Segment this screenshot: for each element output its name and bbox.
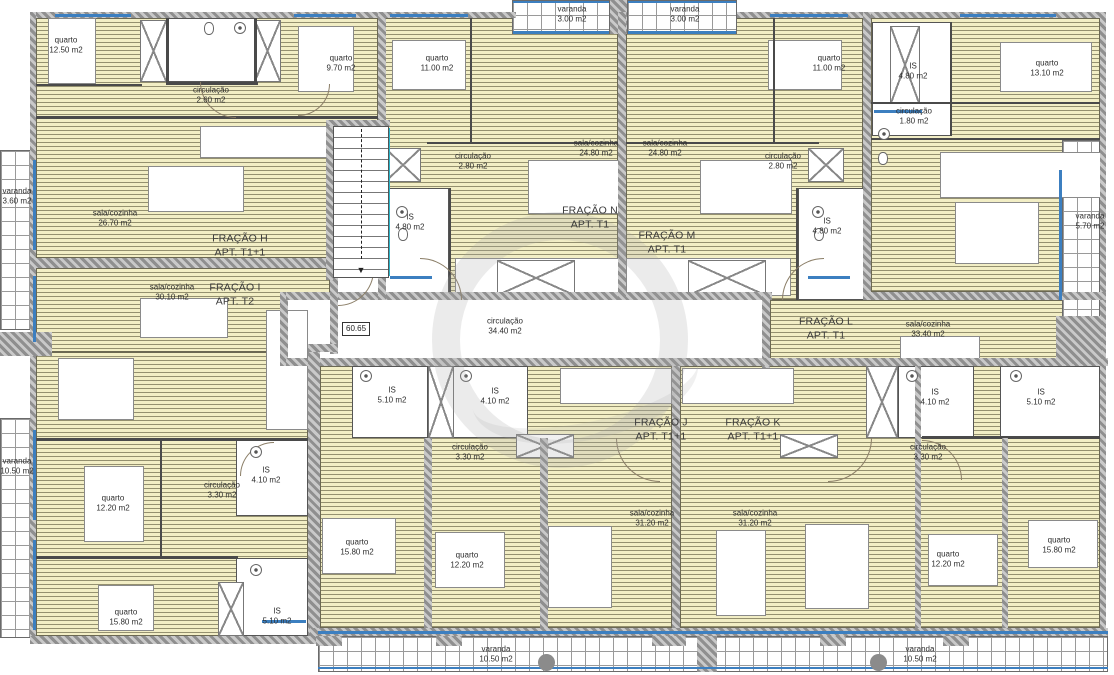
- label-line1: circulação: [910, 443, 946, 452]
- window-glass: [513, 1, 609, 3]
- fraction-label: FRAÇÃO NAPT. T1: [562, 204, 618, 231]
- partition-wall: [773, 18, 775, 142]
- room-label: circulação34.40 m2: [487, 317, 523, 338]
- room-label: IS4.80 m2: [396, 213, 425, 234]
- label-line1: quarto: [1048, 536, 1071, 545]
- wardrobe-x: [497, 260, 575, 296]
- wall-segment: [326, 120, 333, 280]
- window-glass: [1059, 170, 1062, 300]
- staircase: ▼: [333, 126, 389, 278]
- label-line1: quarto: [330, 54, 353, 63]
- room-label: circulação3.30 m2: [204, 481, 240, 502]
- label-line2: 4.80 m2: [813, 227, 842, 236]
- sink-icon: [234, 22, 246, 34]
- label-line2: 3.30 m2: [456, 453, 485, 462]
- label-line2: 10.50 m2: [479, 655, 512, 664]
- label-line2: 12.20 m2: [450, 561, 483, 570]
- wardrobe-x: [866, 366, 898, 438]
- window-glass: [33, 276, 36, 342]
- label-line1: sala/cozinha: [733, 509, 777, 518]
- sink-icon: [878, 128, 890, 140]
- sink-icon: [1010, 370, 1022, 382]
- wall-segment: [308, 352, 320, 644]
- label-line1: IS: [1037, 388, 1045, 397]
- window-glass: [770, 14, 848, 17]
- label-line2: 5.10 m2: [378, 396, 407, 405]
- room-label: IS4.10 m2: [921, 388, 950, 409]
- label-line2: APT. T1+1: [636, 430, 687, 442]
- label-line1: circulação: [452, 443, 488, 452]
- wall-segment: [436, 636, 462, 646]
- fraction-label: FRAÇÃO MAPT. T1: [638, 229, 695, 256]
- label-line1: varanda: [482, 645, 511, 654]
- room-label: sala/cozinha24.80 m2: [574, 139, 618, 160]
- label-line1: sala/cozinha: [643, 139, 687, 148]
- label-line1: varanda: [3, 187, 32, 196]
- room-label: IS5.10 m2: [1027, 388, 1056, 409]
- wall-segment: [762, 292, 770, 368]
- label-line2: APT. T1+1: [215, 246, 266, 258]
- label-line1: quarto: [1036, 59, 1059, 68]
- wall-segment: [30, 636, 318, 644]
- label-line1: quarto: [426, 54, 449, 63]
- label-line2: 33.40 m2: [911, 330, 944, 339]
- wall-segment: [1002, 438, 1008, 628]
- wardrobe-x: [254, 20, 281, 82]
- room-label: quarto12.20 m2: [96, 494, 129, 515]
- furniture: [955, 202, 1039, 264]
- wall-segment: [672, 366, 680, 628]
- stair-direction-line: [361, 129, 362, 259]
- label-line1: varanda: [1076, 212, 1105, 221]
- label-line2: 3.00 m2: [671, 15, 700, 24]
- label-line2: 11.00 m2: [421, 64, 454, 73]
- room-label: varanda3.60 m2: [3, 187, 32, 208]
- furniture: [940, 152, 1102, 198]
- label-line2: 12.50 m2: [49, 46, 82, 55]
- label-line2: 15.80 m2: [109, 618, 142, 627]
- sink-icon: [906, 370, 918, 382]
- room-label: quarto15.80 m2: [340, 538, 373, 559]
- wall-segment: [316, 636, 342, 646]
- room-label: quarto15.80 m2: [109, 608, 142, 629]
- room-label: quarto13.10 m2: [1030, 59, 1063, 80]
- furniture: [148, 166, 244, 212]
- label-line1: FRAÇÃO H: [212, 232, 268, 244]
- label-line1: sala/cozinha: [906, 320, 950, 329]
- room-label: sala/cozinha26.70 m2: [93, 209, 137, 230]
- wall-segment: [1056, 316, 1102, 364]
- room-label: IS4.80 m2: [899, 62, 928, 83]
- wall-segment: [863, 292, 1106, 300]
- wall-segment: [820, 636, 846, 646]
- label-line2: 5.70 m2: [1076, 222, 1105, 231]
- room-label: varanda10.50 m2: [903, 645, 936, 666]
- room-label: IS4.10 m2: [481, 387, 510, 408]
- sink-icon: [360, 370, 372, 382]
- drain-dot: [538, 654, 555, 671]
- label-line1: quarto: [937, 550, 960, 559]
- furniture: [200, 126, 332, 158]
- label-line2: 2.80 m2: [769, 162, 798, 171]
- wardrobe-x: [808, 148, 844, 182]
- label-line1: quarto: [346, 538, 369, 547]
- partition-wall: [36, 556, 238, 559]
- wall-segment: [308, 344, 338, 352]
- label-line1: IS: [491, 387, 499, 396]
- scale-label: 60.65: [342, 322, 370, 336]
- room-label: varanda10.50 m2: [479, 645, 512, 666]
- label-line1: varanda: [906, 645, 935, 654]
- label-line1: FRAÇÃO M: [638, 229, 695, 241]
- furniture: [716, 530, 766, 616]
- label-line2: 3.30 m2: [914, 453, 943, 462]
- label-line2: 1.80 m2: [900, 117, 929, 126]
- balcony-grid: [0, 150, 33, 330]
- room-label: quarto9.70 m2: [327, 54, 356, 75]
- window-glass: [33, 160, 36, 250]
- label-line1: varanda: [558, 5, 587, 14]
- label-line2: 4.10 m2: [921, 398, 950, 407]
- label-line2: APT. T2: [216, 295, 255, 307]
- label-line2: 11.00 m2: [813, 64, 846, 73]
- room-label: quarto11.00 m2: [421, 54, 454, 75]
- partition-wall: [36, 116, 380, 119]
- label-line1: varanda: [671, 5, 700, 14]
- partition-wall: [470, 18, 472, 142]
- room-label: varanda10.50 m2: [0, 457, 33, 478]
- partition-wall: [36, 438, 310, 441]
- label-line1: FRAÇÃO J: [634, 416, 688, 428]
- fraction-label: FRAÇÃO JAPT. T1+1: [634, 416, 688, 443]
- label-line1: IS: [406, 213, 414, 222]
- room-label: quarto12.20 m2: [931, 550, 964, 571]
- label-line2: 4.80 m2: [396, 223, 425, 232]
- label-line2: 3.30 m2: [208, 491, 237, 500]
- label-line2: 2.60 m2: [197, 96, 226, 105]
- wall-segment: [863, 12, 871, 300]
- label-line2: 12.20 m2: [931, 560, 964, 569]
- partition-wall: [922, 436, 1102, 439]
- room-label: sala/cozinha24.80 m2: [643, 139, 687, 160]
- label-line2: APT. T1: [571, 218, 610, 230]
- label-line1: quarto: [102, 494, 125, 503]
- window-glass: [628, 1, 736, 3]
- furniture: [548, 526, 612, 608]
- label-line2: 4.10 m2: [481, 397, 510, 406]
- room-label: IS5.10 m2: [263, 607, 292, 628]
- label-line1: IS: [388, 386, 396, 395]
- fraction-label: FRAÇÃO LAPT. T1: [799, 315, 853, 342]
- label-line1: circulação: [896, 107, 932, 116]
- window-glass: [318, 667, 1108, 669]
- label-line2: 9.70 m2: [327, 64, 356, 73]
- window-glass: [513, 31, 609, 34]
- label-line1: quarto: [115, 608, 138, 617]
- furniture: [560, 368, 672, 404]
- label-line1: IS: [262, 466, 270, 475]
- label-line1: FRAÇÃO I: [209, 281, 260, 293]
- fraction-label: FRAÇÃO HAPT. T1+1: [212, 232, 268, 259]
- room-label: quarto12.50 m2: [49, 36, 82, 57]
- wall-segment: [280, 292, 288, 366]
- wall-segment: [943, 636, 969, 646]
- wall-segment: [330, 268, 338, 354]
- room-label: quarto12.20 m2: [450, 551, 483, 572]
- room-label: varanda3.00 m2: [558, 5, 587, 26]
- furniture: [58, 358, 134, 420]
- room-label: circulação2.80 m2: [455, 152, 491, 173]
- room-label: IS4.80 m2: [813, 217, 842, 238]
- partition-wall: [871, 138, 1102, 140]
- fraction-label: FRAÇÃO KAPT. T1+1: [725, 416, 780, 443]
- label-line2: 4.10 m2: [252, 476, 281, 485]
- label-line1: quarto: [456, 551, 479, 560]
- furniture: [682, 368, 794, 404]
- sink-icon: [250, 446, 262, 458]
- label-line1: IS: [909, 62, 917, 71]
- partition-wall: [36, 84, 142, 86]
- floor-plan: ▼ 60.65 quarto12.50 m2varanda3.00 m2vara…: [0, 0, 1114, 675]
- label-line2: 3.00 m2: [558, 15, 587, 24]
- label-line2: APT. T1+1: [728, 430, 779, 442]
- wardrobe-x: [140, 20, 167, 82]
- partition-wall: [160, 440, 162, 556]
- wardrobe-x: [218, 582, 244, 636]
- label-line2: 10.50 m2: [0, 467, 33, 476]
- wall-segment: [652, 636, 686, 646]
- label-line2: APT. T1: [807, 329, 846, 341]
- label-line1: FRAÇÃO K: [725, 416, 780, 428]
- label-line1: circulação: [487, 317, 523, 326]
- wardrobe-x: [385, 148, 421, 182]
- window-glass: [390, 14, 468, 17]
- wall-segment: [0, 332, 52, 356]
- label-line2: 13.10 m2: [1030, 69, 1063, 78]
- partition-wall: [950, 22, 952, 136]
- toilet-icon: [878, 152, 888, 165]
- label-line1: IS: [823, 217, 831, 226]
- label-line2: 31.20 m2: [738, 519, 771, 528]
- label-line1: sala/cozinha: [574, 139, 618, 148]
- label-line2: 15.80 m2: [340, 548, 373, 557]
- room-label: quarto11.00 m2: [813, 54, 846, 75]
- window-glass: [55, 14, 131, 17]
- window-glass: [318, 631, 1108, 634]
- label-line2: 26.70 m2: [98, 219, 131, 228]
- wall-segment: [424, 438, 432, 628]
- partition-wall: [166, 18, 169, 84]
- label-line1: sala/cozinha: [150, 283, 194, 292]
- label-line2: 34.40 m2: [488, 327, 521, 336]
- room-label: sala/cozinha31.20 m2: [630, 509, 674, 530]
- room-label: quarto15.80 m2: [1042, 536, 1075, 557]
- label-line1: sala/cozinha: [93, 209, 137, 218]
- room-label: varanda5.70 m2: [1076, 212, 1105, 233]
- partition-wall: [871, 102, 1102, 104]
- window-glass: [33, 540, 36, 630]
- room-label: circulação3.30 m2: [452, 443, 488, 464]
- label-line2: 12.20 m2: [96, 504, 129, 513]
- label-line2: 10.50 m2: [903, 655, 936, 664]
- room-label: sala/cozinha31.20 m2: [733, 509, 777, 530]
- label-line1: IS: [273, 607, 281, 616]
- wall-segment: [618, 12, 626, 300]
- stair-arrow-icon: ▼: [334, 266, 388, 275]
- fraction-label: FRAÇÃO IAPT. T2: [209, 281, 260, 308]
- label-line1: FRAÇÃO L: [799, 315, 853, 327]
- room-label: circulação3.30 m2: [910, 443, 946, 464]
- wall-segment: [286, 358, 1108, 366]
- label-line1: sala/cozinha: [630, 509, 674, 518]
- label-line1: circulação: [765, 152, 801, 161]
- label-line1: IS: [931, 388, 939, 397]
- label-line1: FRAÇÃO N: [562, 204, 618, 216]
- room-label: sala/cozinha30.10 m2: [150, 283, 194, 304]
- partition-wall: [254, 18, 257, 84]
- label-line2: 5.10 m2: [1027, 398, 1056, 407]
- label-line1: circulação: [204, 481, 240, 490]
- room-label: circulação2.60 m2: [193, 86, 229, 107]
- sink-icon: [460, 370, 472, 382]
- window-glass: [294, 14, 356, 17]
- label-line2: 3.60 m2: [3, 197, 32, 206]
- room-label: circulação1.80 m2: [896, 107, 932, 128]
- label-line1: varanda: [3, 457, 32, 466]
- label-line2: 5.10 m2: [263, 617, 292, 626]
- room-label: IS5.10 m2: [378, 386, 407, 407]
- label-line2: 2.80 m2: [459, 162, 488, 171]
- room-label: IS4.10 m2: [252, 466, 281, 487]
- label-line2: 24.80 m2: [579, 149, 612, 158]
- room-label: sala/cozinha33.40 m2: [906, 320, 950, 341]
- wardrobe-x: [428, 366, 454, 438]
- label-line1: quarto: [818, 54, 841, 63]
- label-line2: 15.80 m2: [1042, 546, 1075, 555]
- room-label: varanda3.00 m2: [671, 5, 700, 26]
- label-line2: APT. T1: [648, 243, 687, 255]
- drain-dot: [870, 654, 887, 671]
- wardrobe-x: [688, 260, 766, 296]
- toilet-icon: [204, 22, 214, 35]
- room-label: circulação2.80 m2: [765, 152, 801, 173]
- label-line2: 4.80 m2: [899, 72, 928, 81]
- window-glass: [628, 31, 736, 34]
- furniture: [805, 524, 869, 609]
- label-line1: circulação: [455, 152, 491, 161]
- window-glass: [960, 14, 1056, 17]
- balcony-grid: [0, 418, 33, 638]
- label-line1: quarto: [55, 36, 78, 45]
- label-line2: 24.80 m2: [648, 149, 681, 158]
- sink-icon: [250, 564, 262, 576]
- label-line2: 30.10 m2: [155, 293, 188, 302]
- wall-segment: [540, 438, 548, 628]
- label-line1: circulação: [193, 86, 229, 95]
- label-line2: 31.20 m2: [635, 519, 668, 528]
